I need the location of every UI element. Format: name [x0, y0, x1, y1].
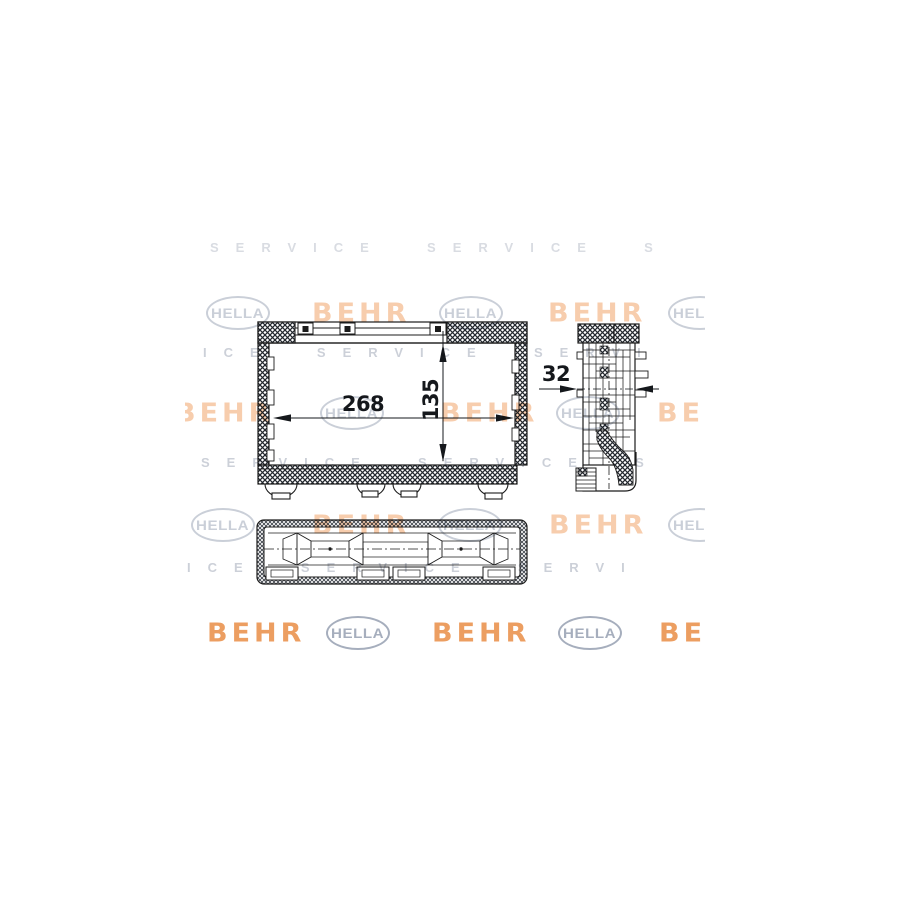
dimension-height-label: 135 [419, 379, 443, 421]
side-view [574, 320, 654, 497]
bottom-view [254, 516, 532, 588]
dimension-depth-label: 32 [542, 362, 570, 386]
pipe-stub [576, 468, 596, 491]
product-drawing-image: 268 135 32 SERVICE SERVICE S HELLA BEHR … [0, 0, 900, 900]
technical-drawing: 268 135 32 [0, 0, 900, 900]
dimension-width-label: 268 [342, 392, 384, 416]
front-view [256, 320, 530, 503]
